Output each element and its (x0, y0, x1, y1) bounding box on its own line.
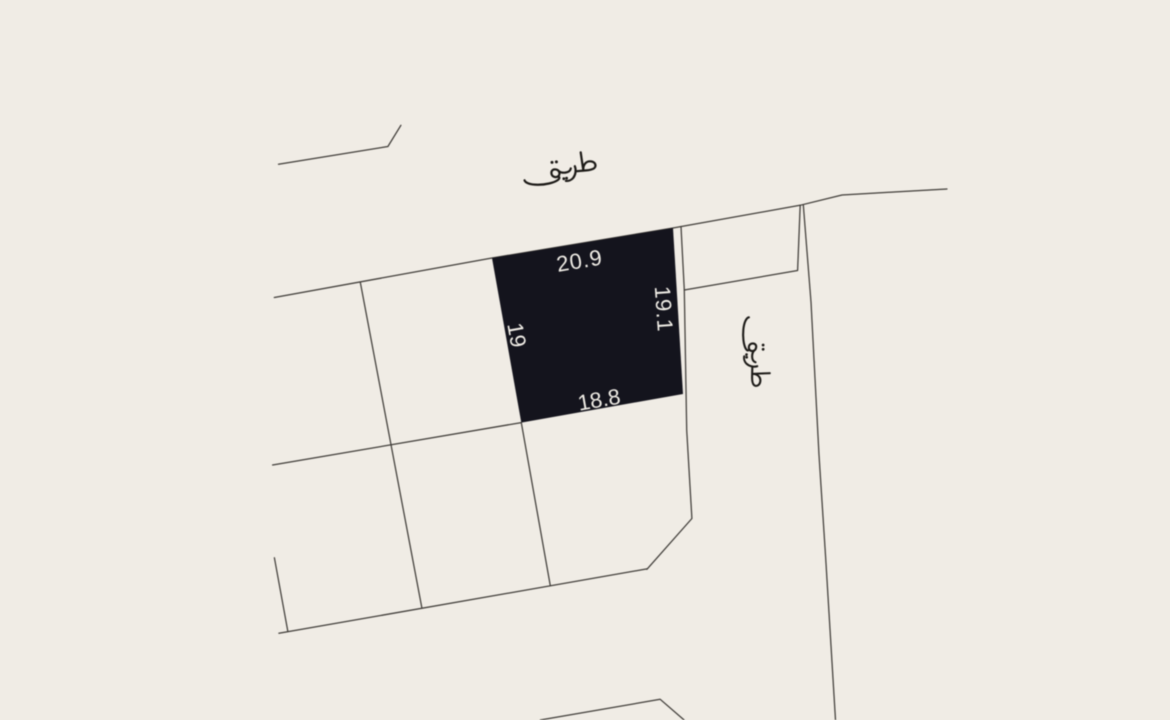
svg-text:19: 19 (502, 321, 531, 349)
svg-text:19.1: 19.1 (650, 285, 678, 333)
